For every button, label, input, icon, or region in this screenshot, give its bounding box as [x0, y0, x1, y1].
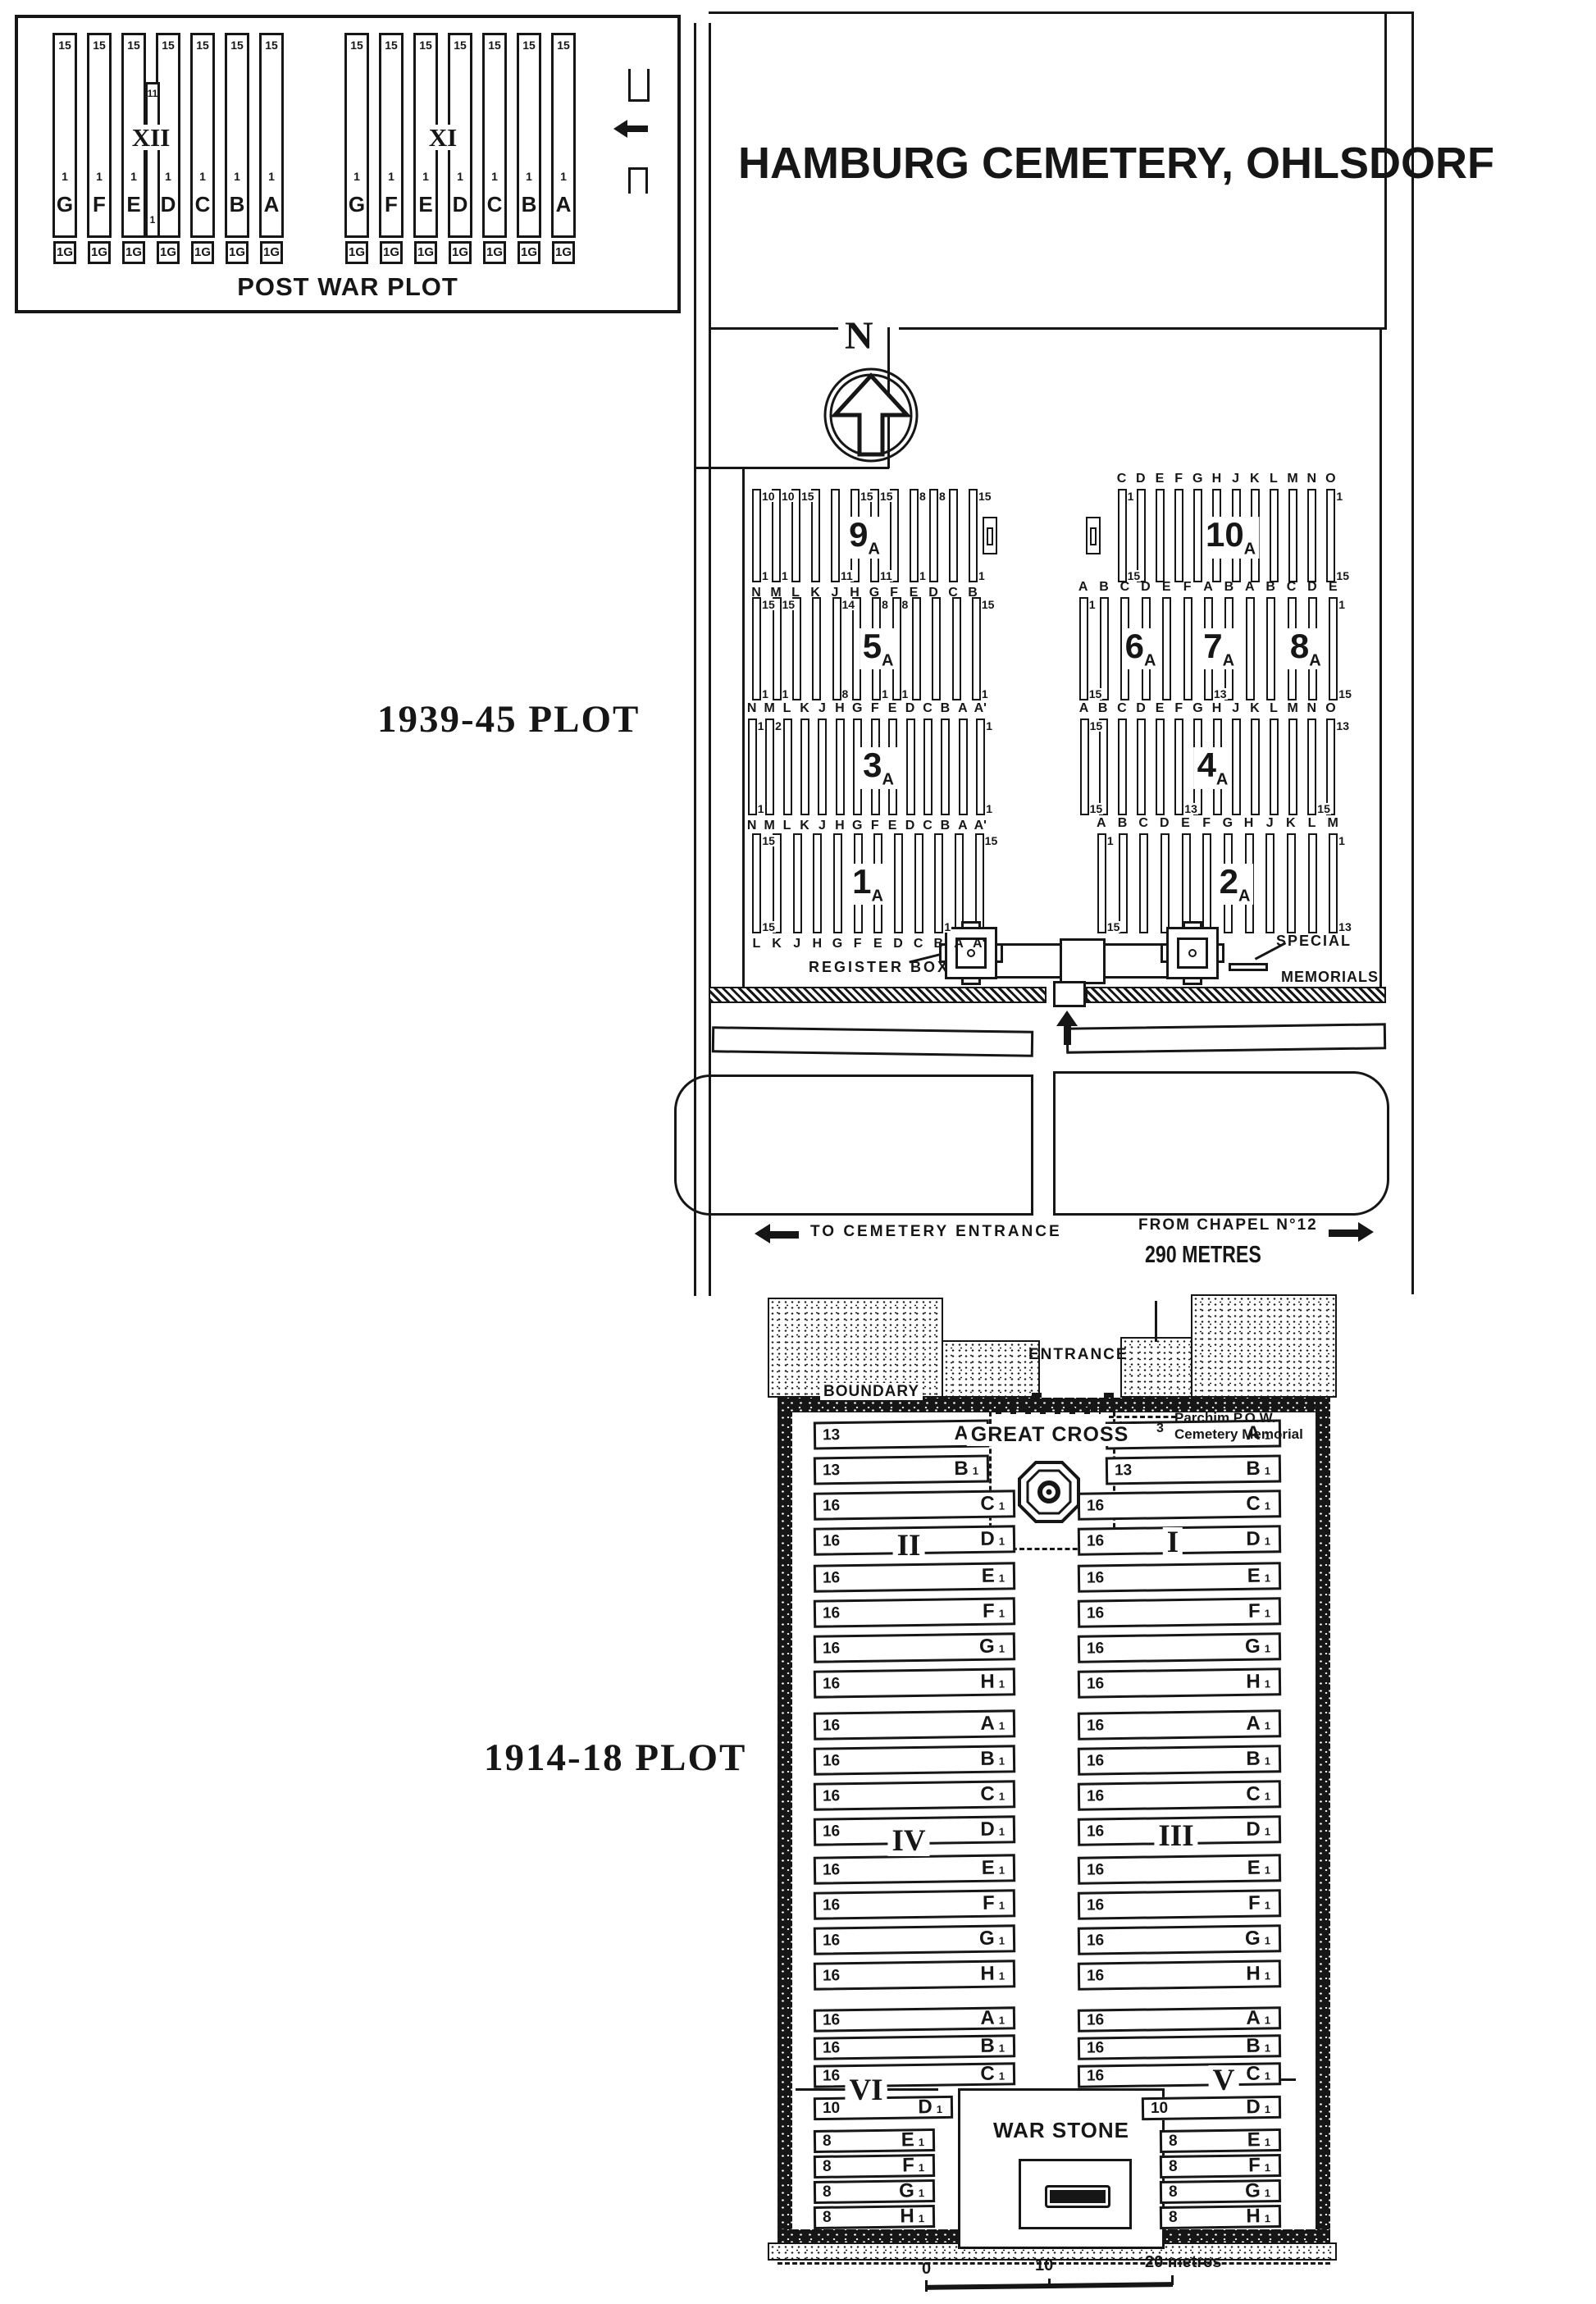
pwp-foot-label: 1G — [229, 246, 245, 258]
row-letter: B — [980, 2035, 995, 2057]
row-letter: D — [1246, 1818, 1261, 1841]
grave-strip-68A-5 — [1183, 597, 1192, 700]
plot-row-3-left-E: 8E1 — [814, 2128, 935, 2153]
row-count: 16 — [823, 2039, 840, 2057]
plot-row-1-left-C: 16C1 — [814, 1490, 1015, 1520]
row-count: 16 — [823, 2011, 840, 2029]
row-grave-num: 1 — [1265, 1607, 1270, 1619]
row-letter-wrap: D1 — [980, 1527, 1005, 1550]
grave-strip-3A-9 — [906, 719, 915, 815]
strip-letter-below: E — [873, 938, 882, 951]
row-count: 16 — [1087, 1717, 1104, 1735]
section-label-4A: 4A — [1194, 747, 1232, 788]
row-letter-wrap: H1 — [1246, 2205, 1270, 2228]
plot-row-3-right-G: 8G1 — [1160, 2179, 1281, 2204]
row-letter-wrap: B1 — [980, 1747, 1005, 1770]
road-to-entrance-label: TO CEMETERY ENTRANCE — [810, 1224, 1062, 1239]
row-letter: H — [980, 1963, 995, 1985]
road-east-arrow-icon — [1358, 1222, 1374, 1242]
strip-letter-above: B — [1265, 581, 1275, 594]
section-label-1A: 1A — [849, 864, 887, 905]
monument-marker-inner-1 — [987, 527, 993, 545]
strip-letter-below: E — [910, 586, 919, 600]
row-count: 16 — [823, 1787, 840, 1805]
strip-letter-above: M — [1327, 817, 1338, 830]
pwp-foot-label: 1G — [194, 246, 211, 258]
strip-num-top: 15 — [761, 835, 776, 846]
row-letter: F — [983, 1600, 995, 1622]
row-grave-num: 1 — [999, 1719, 1005, 1731]
strip-letter-below: J — [832, 586, 839, 600]
register-box-structure-tab-top — [961, 921, 981, 929]
strip-letter-above: E — [1156, 702, 1165, 715]
row-letter-wrap: F1 — [1248, 1891, 1270, 1914]
strip-letter-above: B — [941, 702, 951, 715]
plot-row-3-right-B: 16B1 — [1078, 2034, 1281, 2060]
strip-letter-below: B — [968, 586, 978, 600]
row-grave-num: 1 — [1265, 2042, 1270, 2054]
row-letter: E — [1247, 1565, 1261, 1587]
grave-strip-1A-9 — [934, 833, 943, 933]
pwp-strip-letter: G — [57, 194, 73, 215]
row-count: 13 — [823, 1462, 840, 1480]
pwp-strip-letter: C — [487, 194, 503, 215]
pwp-foot-label: 1G — [160, 246, 176, 258]
section-label-6A: 6A — [1122, 628, 1160, 669]
scale-tick-10: 10 — [1035, 2257, 1053, 2274]
plot3945-step-top-line — [695, 467, 889, 469]
grave-strip-4A-2 — [1118, 719, 1127, 815]
grave-strip-3A-12 — [959, 719, 968, 815]
row-letter-wrap: E1 — [982, 1856, 1005, 1879]
pwp-strip-mid-num: 1 — [199, 171, 206, 182]
row-letter-wrap: E1 — [901, 2128, 925, 2151]
memorial-dash-line — [1109, 1416, 1176, 1418]
row-grave-num: 1 — [937, 2103, 942, 2115]
strip-letter-above: D — [1307, 581, 1317, 594]
row-count: 16 — [1087, 1497, 1104, 1515]
compass-north-label: N — [845, 317, 873, 356]
strip-num-bottom: 1 — [919, 570, 927, 582]
strip-letter-above: M — [1287, 702, 1297, 715]
road-distance-label: 290 METRES — [1145, 1243, 1261, 1267]
strip-num-bottom: 1 — [781, 570, 789, 582]
strip-letter-above: A' — [974, 702, 987, 715]
row-grave-num: 1 — [999, 1790, 1005, 1802]
row-letter-wrap: F1 — [902, 2154, 924, 2177]
row-letter-wrap: G1 — [1245, 1927, 1270, 1950]
grave-strip-68A-1 — [1100, 597, 1109, 700]
strip-letter-below: F — [890, 586, 898, 600]
pwp-strip-letter: E — [126, 194, 140, 215]
pwp-strip-letter: B — [522, 194, 537, 215]
row-count: 10 — [1151, 2100, 1168, 2118]
strip-letter-below: N — [747, 819, 757, 833]
strip-letter-below: C — [948, 586, 958, 600]
strip-num-bottom: 15 — [761, 921, 776, 933]
strip-letter-above: D — [1136, 472, 1146, 486]
pwp-foot-label: 1G — [452, 246, 468, 258]
lawn-block-east — [1053, 1071, 1389, 1216]
pwp-strip-letter: B — [230, 194, 245, 215]
strip-num-top: 15 — [1089, 720, 1104, 732]
strip-letter-above: C — [923, 702, 933, 715]
memorial-structure-tab-top — [1183, 921, 1202, 929]
row-letter-wrap: H1 — [980, 1962, 1005, 1985]
strip-num-top: 1 — [1338, 835, 1346, 846]
plot-row-3-left-G: 8G1 — [814, 2179, 935, 2204]
pwp-strip-top-num: 15 — [385, 39, 398, 51]
strip-num-bottom: 1 — [901, 688, 910, 700]
strip-letter-above: B — [1118, 817, 1128, 830]
compass-rose-icon — [820, 364, 922, 466]
strip-letter-above: H — [1244, 817, 1254, 830]
pwp-strip-top-num: 15 — [230, 39, 244, 51]
pwp-strip-top-num: 15 — [488, 39, 501, 51]
grave-strip-10A-0 — [1118, 489, 1127, 582]
strip-letter-above: J — [819, 702, 826, 715]
grave-strip-5A-3 — [812, 597, 821, 700]
row-count: 8 — [823, 2209, 832, 2227]
row-count: 16 — [823, 1604, 840, 1622]
row-letter: B — [980, 1748, 995, 1770]
memorial-structure-tab-right — [1216, 943, 1224, 963]
strip-num-top: 8 — [938, 490, 946, 502]
row-count: 16 — [1087, 1532, 1104, 1550]
row-grave-num: 1 — [1265, 1969, 1270, 1982]
grave-strip-9A-4 — [831, 489, 840, 582]
plot-row-3-right-D: 10D1 — [1142, 2096, 1281, 2120]
row-letter: A — [980, 1713, 995, 1735]
row-count: 8 — [1169, 2133, 1178, 2151]
road-right-outer-line — [1411, 11, 1414, 1294]
strip-num-bottom: 15 — [1316, 803, 1331, 814]
strip-num-top: 15 — [978, 490, 992, 502]
row-letter-wrap: D1 — [918, 2096, 942, 2119]
grave-strip-9A-8 — [910, 489, 919, 582]
row-count: 8 — [1169, 2158, 1178, 2176]
boundary-gate — [1053, 981, 1086, 1007]
plot-row-2-right-G: 16G1 — [1078, 1924, 1281, 1955]
row-letter: E — [982, 1857, 995, 1879]
grave-strip-2A-5 — [1202, 833, 1211, 933]
strip-num-bottom: 15 — [1338, 688, 1352, 700]
pwp-strip-top-num: 15 — [93, 39, 106, 51]
row-letter-wrap: D1 — [1246, 1818, 1270, 1841]
plot-row-1-right-F: 16F1 — [1078, 1597, 1281, 1627]
avenue-bar-east — [1066, 1023, 1386, 1053]
row-grave-num: 1 — [999, 1642, 1005, 1654]
row-letter: B — [954, 1458, 969, 1480]
grave-strip-4A-13 — [1326, 719, 1335, 815]
plot-row-1-right-H: 16H1 — [1078, 1668, 1281, 1698]
strip-letter-above: D — [1160, 817, 1170, 830]
grave-strip-9A-3 — [811, 489, 820, 582]
row-letter: C — [980, 1783, 995, 1805]
row-letter: C — [1246, 1493, 1261, 1515]
row-count: 16 — [823, 2067, 840, 2085]
plot-row-1-left-H: 16H1 — [814, 1668, 1015, 1698]
grave-strip-10A-2 — [1156, 489, 1165, 582]
plot-numeral-II: II — [893, 1531, 925, 1561]
row-count: 16 — [823, 1640, 840, 1658]
section-label-5A: 5A — [860, 628, 897, 669]
pwp-strip-mid-num: 1 — [268, 171, 275, 182]
strip-letter-above: H — [835, 702, 845, 715]
plot1418-wall-right — [1316, 1398, 1330, 2242]
row-letter: A — [1246, 2007, 1261, 2029]
grave-strip-2A-3 — [1161, 833, 1170, 933]
pwp-strip-top-num: 15 — [58, 39, 71, 51]
strip-num-top: 8 — [881, 599, 889, 610]
grave-strip-5A-9 — [932, 597, 941, 700]
plot-row-2-left-A: 16A1 — [814, 1709, 1015, 1740]
pwp-strip-mid-num: 1 — [62, 171, 68, 182]
row-letter-wrap: A1 — [1246, 1712, 1270, 1735]
strip-letter-above: N — [1306, 472, 1316, 486]
grave-strip-1A-2 — [793, 833, 802, 933]
strip-letter-below: C — [923, 819, 933, 833]
plot-row-3-right-E: 8E1 — [1160, 2128, 1281, 2153]
row-letter: G — [899, 2179, 914, 2201]
grave-strip-3A-1 — [765, 719, 774, 815]
road-east-arrow-stem — [1329, 1230, 1358, 1237]
row-grave-num: 1 — [999, 1934, 1005, 1946]
numeral-dash — [887, 2088, 938, 2091]
strip-num-top: 8 — [901, 599, 910, 610]
strip-num-top: 1 — [1106, 835, 1115, 846]
strip-num-top: 15 — [879, 490, 894, 502]
strip-letter-below: A — [954, 938, 964, 951]
grave-strip-1A-1 — [773, 833, 782, 933]
row-letter: D — [918, 2096, 933, 2118]
row-count: 8 — [1169, 2183, 1178, 2201]
strip-letter-below: A — [958, 819, 968, 833]
grave-strip-5A-11 — [972, 597, 981, 700]
pwp-strip-top-num: 15 — [522, 39, 536, 51]
row-letter-wrap: F1 — [983, 1891, 1005, 1914]
strip-num-bottom: 1 — [943, 921, 951, 933]
strip-letter-below: K — [810, 586, 820, 600]
row-letter: G — [979, 1636, 995, 1658]
plot-numeral-I: I — [1163, 1527, 1183, 1558]
plot-row-1-left-G: 16G1 — [814, 1632, 1015, 1663]
strip-letter-below: C — [914, 938, 923, 951]
strip-letter-below: J — [819, 819, 826, 833]
grave-strip-2A-10 — [1308, 833, 1317, 933]
strip-letter-above: M — [764, 702, 774, 715]
memorial-structure-tab-bottom — [1183, 977, 1202, 985]
section-label-8A: 8A — [1287, 628, 1325, 669]
strip-num-bottom: 15 — [1088, 688, 1103, 700]
row-grave-num: 1 — [1265, 1934, 1270, 1946]
strip-letter-above: N — [747, 702, 757, 715]
row-count: 16 — [823, 1861, 840, 1879]
row-grave-num: 1 — [1265, 1465, 1270, 1477]
row-letter: E — [1247, 2128, 1261, 2151]
row-letter-wrap: F1 — [1248, 2154, 1270, 2177]
row-count: 10 — [823, 2100, 840, 2118]
pwp-strip-letter: G — [349, 194, 365, 215]
great-cross-dot-row — [996, 1407, 1101, 1414]
row-grave-num: 1 — [999, 1607, 1005, 1619]
pwp-strip-mid-num: 1 — [422, 171, 429, 182]
boundary-stipple-nw-b — [942, 1340, 1040, 1398]
row-grave-num: 1 — [1265, 1719, 1270, 1731]
pwp-strip-mid-num: 1 — [234, 171, 240, 182]
pwp-foot-label: 1G — [125, 246, 142, 258]
row-count: 8 — [823, 2158, 832, 2176]
plot-1914-18-label: 1914-18 PLOT — [484, 1739, 746, 1777]
strip-letter-below: F — [854, 938, 862, 951]
strip-letter-above: L — [1308, 817, 1316, 830]
row-count: 16 — [1087, 1604, 1104, 1622]
row-grave-num: 1 — [999, 1969, 1005, 1982]
grave-strip-10A-1 — [1137, 489, 1146, 582]
pwp-short-strip-bottom-num: 1 — [150, 215, 156, 225]
strip-letter-below: D — [905, 819, 915, 833]
row-letter: G — [1245, 2179, 1261, 2201]
pwp-strip-top-num: 15 — [557, 39, 570, 51]
row-grave-num: 1 — [1265, 2103, 1270, 2115]
row-grave-num: 1 — [999, 1572, 1005, 1584]
strip-num-bottom: 1 — [757, 803, 765, 814]
row-letter-wrap: C1 — [980, 2062, 1005, 2085]
flagpole-line — [1155, 1301, 1157, 1342]
plot-row-2-right-B: 16B1 — [1078, 1745, 1281, 1775]
plot-row-2-left-B: 16B1 — [814, 1745, 1015, 1775]
row-letter: H — [1246, 2205, 1261, 2227]
strip-letter-below: L — [752, 938, 760, 951]
plot-row-2-left-G: 16G1 — [814, 1924, 1015, 1955]
row-count: 8 — [1169, 2209, 1178, 2227]
gate-arrow-head-icon — [1056, 1011, 1078, 1026]
row-letter: F — [1248, 1892, 1261, 1914]
row-grave-num: 1 — [1265, 1825, 1270, 1837]
war-stone-label: WAR STONE — [993, 2119, 1129, 2141]
row-grave-num: 1 — [919, 2212, 924, 2224]
row-grave-num: 1 — [999, 1899, 1005, 1911]
row-count: 8 — [823, 2183, 832, 2201]
pwp-foot-label: 1G — [417, 246, 434, 258]
plot-row-2-left-C: 16C1 — [814, 1780, 1015, 1810]
plot-row-1-left-F: 16F1 — [814, 1597, 1015, 1627]
row-count: 13 — [1115, 1462, 1132, 1480]
pwp-strip-top-num: 15 — [265, 39, 278, 51]
row-count: 16 — [1087, 1861, 1104, 1879]
row-letter: H — [900, 2205, 914, 2227]
pwp-strip-letter: A — [556, 194, 572, 215]
row-letter-wrap: A1 — [980, 1712, 1005, 1735]
row-letter: F — [902, 2154, 914, 2176]
grave-strip-4A-1 — [1099, 719, 1108, 815]
road-from-chapel-label: FROM CHAPEL N°12 — [1138, 1217, 1318, 1233]
row-letter: C — [1246, 2063, 1261, 2085]
row-grave-num: 1 — [919, 2187, 924, 2199]
pwp-strip-top-num: 15 — [350, 39, 363, 51]
row-letter: C — [980, 2063, 995, 2085]
plot-row-2-right-C: 16C1 — [1078, 1780, 1281, 1810]
row-letter-wrap: D1 — [980, 1818, 1005, 1841]
strip-letter-above: E — [1162, 581, 1171, 594]
row-letter: F — [1248, 2154, 1261, 2176]
row-grave-num: 1 — [973, 1465, 978, 1477]
special-memorials-label-1: SPECIAL — [1276, 933, 1352, 948]
row-letter: D — [980, 1528, 995, 1550]
strip-letter-above: H — [1212, 472, 1222, 486]
grave-strip-2A-4 — [1182, 833, 1191, 933]
entrance-label: ENTRANCE — [1028, 1347, 1129, 1362]
row-count: 8 — [823, 2133, 832, 2151]
section-label-7A: 7A — [1200, 628, 1238, 669]
grave-strip-3A-11 — [941, 719, 950, 815]
row-letter-wrap: B1 — [1246, 2034, 1270, 2057]
grave-strip-4A-5 — [1174, 719, 1183, 815]
section-label-10A: 10A — [1202, 517, 1259, 558]
plot3945-left-border — [742, 467, 745, 988]
strip-num-bottom: 15 — [1335, 570, 1350, 582]
strip-letter-above: E — [888, 702, 897, 715]
monument-marker-inner-2 — [1090, 527, 1097, 545]
strip-letter-above: J — [1232, 472, 1239, 486]
pwp-strip-top-num: 15 — [196, 39, 209, 51]
strip-letter-above: K — [1286, 817, 1296, 830]
plot-row-2-right-E: 16E1 — [1078, 1854, 1281, 1884]
scale-bar-tick-left — [925, 2280, 928, 2292]
great-cross-label: GREAT CROSS — [967, 1424, 1133, 1446]
pwp-strip-mid-num: 1 — [388, 171, 394, 182]
strip-letter-below: D — [928, 586, 938, 600]
row-letter-wrap: G1 — [1245, 1635, 1270, 1658]
row-letter-wrap: E1 — [1247, 2128, 1271, 2151]
row-grave-num: 1 — [1265, 1535, 1270, 1547]
row-letter: C — [980, 1493, 995, 1515]
strip-num-bottom: 8 — [841, 688, 850, 700]
strip-num-bottom: 13 — [1338, 921, 1352, 933]
row-letter-wrap: H1 — [1246, 1962, 1270, 1985]
row-grave-num: 1 — [1265, 2161, 1270, 2174]
row-letter: D — [1246, 2096, 1261, 2118]
road-bracket-u-icon — [628, 69, 650, 102]
row-letter: G — [979, 1928, 995, 1950]
grave-strip-5A-4 — [832, 597, 841, 700]
scale-tick-0: 0 — [922, 2261, 931, 2277]
row-letter: D — [980, 1818, 995, 1841]
boundary-stipple-ne-a — [1191, 1294, 1337, 1398]
pwp-strip-letter: F — [93, 194, 106, 215]
row-letter: E — [901, 2128, 914, 2151]
pwp-group-numeral-XI: XI — [425, 125, 461, 150]
grave-strip-9A-1 — [772, 489, 781, 582]
strip-letter-below: M — [764, 819, 774, 833]
plot-row-3-left-A: 16A1 — [814, 2006, 1015, 2032]
war-stone-icon — [1045, 2185, 1110, 2208]
pwp-foot-label: 1G — [349, 246, 365, 258]
row-letter-wrap: G1 — [979, 1635, 1005, 1658]
strip-letter-above: N — [1307, 702, 1317, 715]
pwp-foot-label: 1G — [57, 246, 73, 258]
pwp-foot-label: 1G — [555, 246, 572, 258]
row-letter-wrap: A1 — [980, 2006, 1005, 2029]
grave-strip-1A-3 — [813, 833, 822, 933]
strip-letter-above: D — [1141, 581, 1151, 594]
grave-strip-2A-1 — [1119, 833, 1128, 933]
road-top-line — [709, 11, 1412, 14]
strip-letter-above: G — [852, 702, 862, 715]
strip-letter-above: C — [1117, 702, 1127, 715]
strip-letter-above: M — [1287, 472, 1297, 486]
strip-num-top: 15 — [860, 490, 874, 502]
